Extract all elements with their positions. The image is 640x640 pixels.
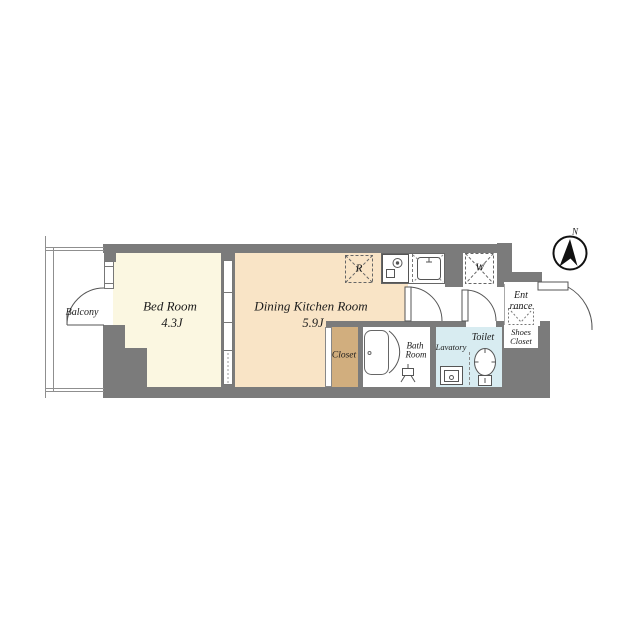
dining-kitchen-area-label: 5.9J	[302, 317, 323, 330]
toilet-icon	[470, 349, 496, 387]
balcony-label: Balcony	[66, 308, 99, 318]
stove-icon	[383, 255, 409, 283]
bedroom-window	[105, 262, 114, 289]
dining-kitchen-label: Dining Kitchen Room	[254, 300, 367, 313]
entrance-label-line2: rance	[510, 302, 533, 312]
floor-plan-canvas: Balcony Bed Room 4.3J Dining Kitchen Roo…	[0, 0, 640, 640]
lavatory-door	[462, 290, 496, 321]
compass-north-label: N	[572, 228, 578, 237]
bedroom-sliding-door	[224, 261, 233, 385]
shoes-closet-label-line2: Closet	[510, 337, 532, 346]
bathroom-label-line2: Room	[406, 351, 427, 360]
washbasin-icon	[441, 367, 463, 385]
bath-door-arc	[389, 331, 400, 373]
bathtub-icon	[365, 331, 389, 375]
bath-faucet-icon	[401, 364, 415, 382]
washer-label: W	[475, 263, 484, 274]
lavatory-label: Lavatory	[436, 343, 467, 352]
entrance-door	[538, 282, 592, 330]
entrance-label-line1: Ent	[514, 291, 528, 301]
refrigerator-label: R	[356, 264, 363, 275]
bedroom-label: Bed Room	[143, 300, 197, 313]
compass-icon	[554, 237, 587, 270]
toilet-label: Toilet	[472, 333, 494, 343]
bedroom-area-label: 4.3J	[161, 317, 182, 330]
closet-label: Closet	[332, 351, 356, 361]
closet-door	[326, 328, 332, 387]
dk-hall-door	[405, 287, 442, 321]
